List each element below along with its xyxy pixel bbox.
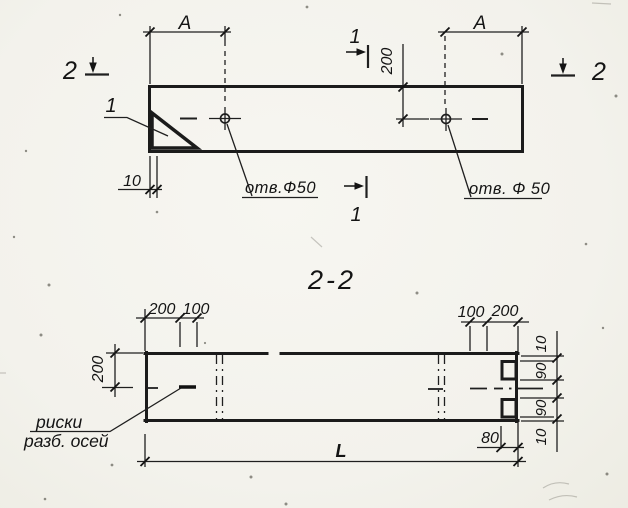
plan-beam-outline [150,87,523,152]
chain-10-bottom-label: 10 [533,428,550,445]
chain-90-upper-label: 90 [533,362,550,379]
hole-left [180,107,241,130]
section-mark-1-top: 1 [346,26,368,68]
internal-dashed-lines [217,355,445,419]
section-mark-1-bottom: 1 [344,176,367,226]
chain-10-top-label: 10 [533,335,550,352]
section-mark-2-right: 2 [551,58,606,86]
dim-A-right-label: A [473,13,487,34]
section-beam-outline [145,353,518,422]
hole-callout-left: отв.Ф50 [227,124,318,198]
dim-A-left: A [143,13,231,104]
hole-right [430,108,488,131]
section-centerline [147,387,543,389]
dim-A-right: A [438,13,529,106]
section-1-bottom-label: 1 [350,204,361,226]
dim-80-label: 80 [481,430,499,447]
dim-200-left: 200 [90,344,143,397]
dim-10-label: 10 [123,173,141,190]
dim-200-top-left-label: 200 [148,301,176,318]
embed-square-upper [502,362,516,380]
section-2-left-label: 2 [62,57,77,85]
dim-200-plan-label: 200 [379,48,396,76]
dim-A-left-label: A [178,13,192,34]
section-2-right-label: 2 [591,58,606,86]
section-1-top-label: 1 [349,26,360,48]
dim-length-L: L [137,421,526,467]
dim-200-left-label: 200 [90,356,107,384]
drawing-sheet: A A 200 10 [0,0,628,508]
hole-callout-right: отв. Ф 50 [448,125,551,199]
axes-note-line1: риски [35,412,82,432]
embed-square-lower [502,400,516,418]
dim-80: 80 [477,426,524,452]
dim-top-right: 100 200 [458,303,529,352]
section-title: 2-2 [307,265,356,295]
dim-L-label: L [336,441,347,461]
plan-view: A A 200 10 [62,13,606,226]
section-view: 2-2 [23,265,564,467]
section-mark-2-left: 2 [62,57,109,85]
dim-right-chain: 10 90 90 10 [520,331,564,452]
dim-10-plan: 10 [118,156,162,198]
axes-note-line2: разб. осей [23,431,109,451]
corner-plate-ref-label: 1 [105,95,116,117]
dim-top-left: 200 100 [136,301,209,351]
dim-100-top-left-label: 100 [183,301,210,318]
hole-label-right: отв. Ф 50 [469,180,551,198]
dim-200-top-right-label: 200 [491,303,519,320]
technical-drawing: A A 200 10 [0,0,628,508]
corner-plate-callout: 1 [104,95,168,136]
chain-90-lower-label: 90 [533,399,550,416]
dim-100-top-right-label: 100 [458,304,485,321]
hole-label-left: отв.Ф50 [245,179,316,197]
